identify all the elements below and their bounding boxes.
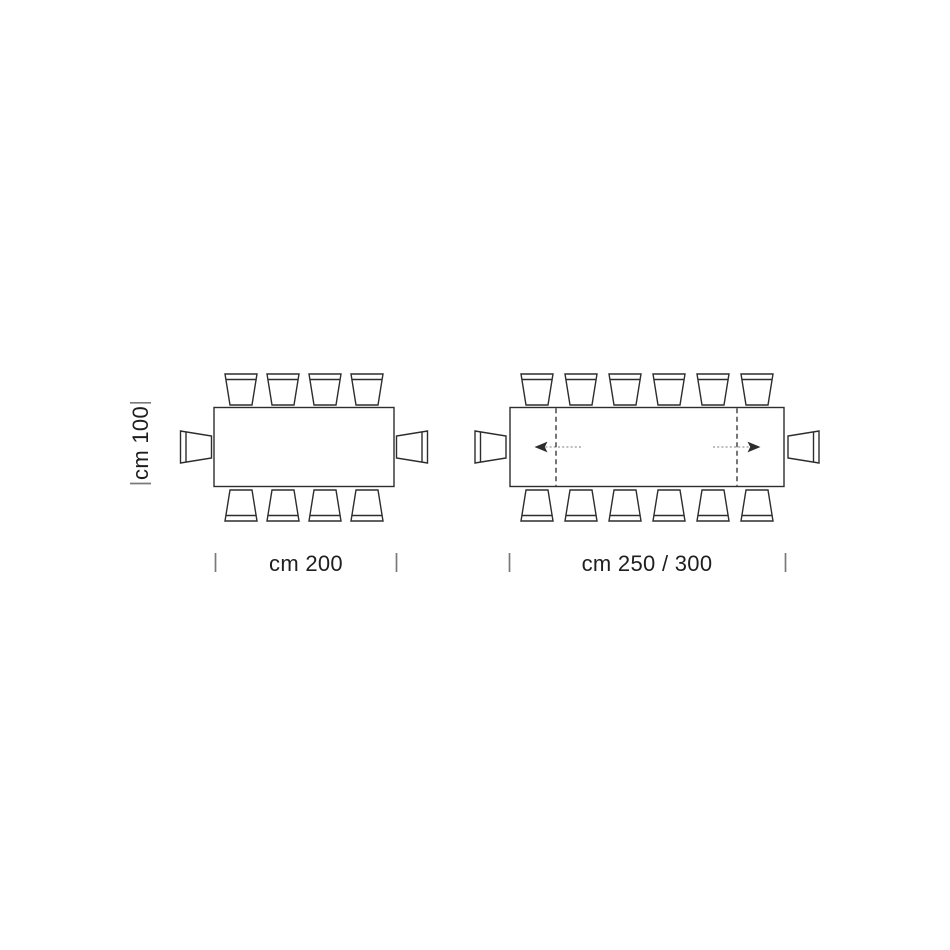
chair-icon [741, 374, 773, 405]
fixed-table-diagram: cm 100 cm 200 [128, 374, 428, 576]
chair-icon [609, 490, 641, 521]
width-dimension-fixed: cm 200 [216, 551, 397, 576]
chair-icon [181, 431, 212, 463]
chair-icon [697, 374, 729, 405]
chair-icon [521, 490, 553, 521]
width-dimension-label: cm 250 / 300 [582, 551, 713, 576]
width-dimension-label: cm 200 [269, 551, 343, 576]
chair-icon [521, 374, 553, 405]
chair-icon [475, 431, 506, 463]
extendable-table-diagram: cm 250 / 300 [475, 374, 819, 576]
diagram-svg: cm 100 cm 200 [0, 0, 950, 950]
chair-icon [741, 490, 773, 521]
depth-dimension: cm 100 [128, 403, 153, 484]
chair-icon [788, 431, 819, 463]
chair-icon [309, 490, 341, 521]
dimension-diagram: cm 100 cm 200 [0, 0, 950, 950]
chair-icon [267, 490, 299, 521]
chair-icon [225, 490, 257, 521]
table-top-fixed [214, 408, 394, 487]
chair-icon [225, 374, 257, 405]
chair-icon [351, 374, 383, 405]
chair-icon [653, 490, 685, 521]
depth-dimension-label: cm 100 [128, 406, 153, 480]
chair-icon [267, 374, 299, 405]
chair-icon [565, 374, 597, 405]
chair-icon [565, 490, 597, 521]
chair-icon [397, 431, 428, 463]
chair-icon [653, 374, 685, 405]
chair-icon [309, 374, 341, 405]
chair-icon [351, 490, 383, 521]
chair-icon [609, 374, 641, 405]
width-dimension-extendable: cm 250 / 300 [510, 551, 786, 576]
chair-icon [697, 490, 729, 521]
